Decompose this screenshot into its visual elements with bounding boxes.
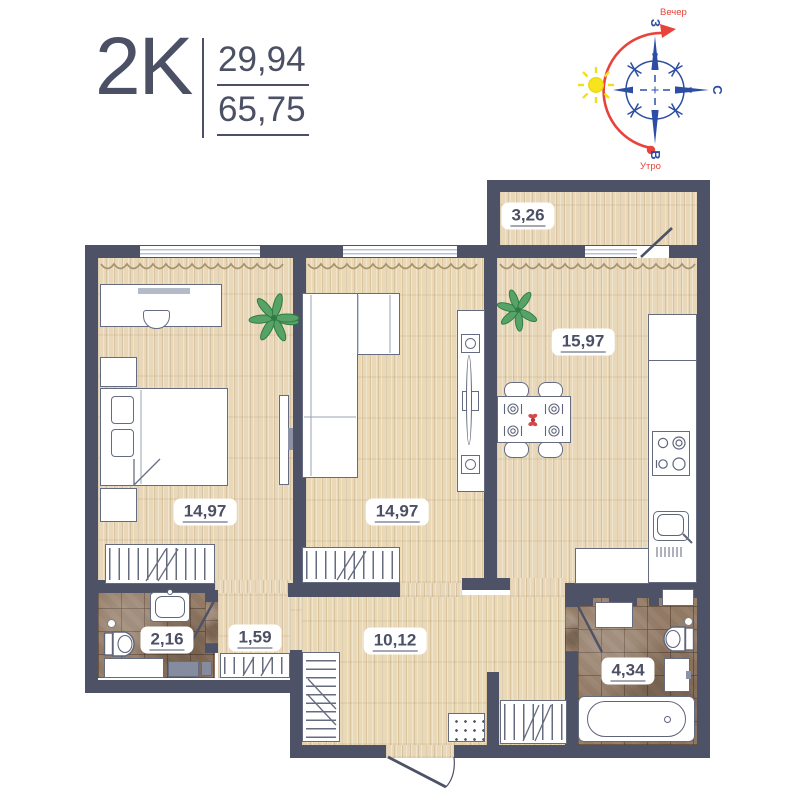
living-wardrobe <box>302 547 400 583</box>
kitchen-area-label: 15,97 <box>552 329 615 356</box>
toilet <box>103 629 145 659</box>
bedroom-tv-mount <box>288 428 293 450</box>
bathroom-sink-basin <box>155 596 185 618</box>
toilet-2 <box>655 624 697 654</box>
speaker-1 <box>461 334 480 353</box>
bath-cabinet <box>168 661 199 677</box>
bedroom-wardrobe <box>105 544 215 584</box>
bathtub-drain <box>664 716 671 723</box>
flower-decoration <box>528 413 538 427</box>
dining-chair <box>538 441 563 458</box>
bathroom-2-area-label: 4,34 <box>601 658 654 685</box>
hallway-area-label: 1,59 <box>228 625 281 652</box>
washing-machine-2 <box>595 602 633 628</box>
bathtub-basin <box>587 701 686 737</box>
cooktop-burners <box>652 431 690 476</box>
kitchen-counter-bottom <box>575 548 649 584</box>
corridor-area-label: 10,12 <box>364 628 427 655</box>
dining-chair <box>504 441 529 458</box>
speaker-2 <box>461 455 480 474</box>
bath-cabinet-small <box>201 661 212 676</box>
bathroom-area-label: 2,16 <box>140 627 193 654</box>
plant-icon <box>248 292 300 344</box>
living-room-area-label: 14,97 <box>366 499 429 526</box>
entry-wardrobe <box>500 700 567 744</box>
bath-shelf-white <box>662 589 694 606</box>
bedroom-area-label: 14,97 <box>174 499 237 526</box>
table-settings <box>497 396 571 443</box>
sink-details <box>652 526 697 561</box>
sofa-seams <box>302 293 402 479</box>
light-fixture <box>107 619 116 628</box>
balcony-area-label: 3,26 <box>501 203 554 230</box>
floor-plan-page: 2K 29,94 65,75 <box>0 0 800 800</box>
bath-shelf <box>578 598 593 606</box>
sink-tap <box>167 589 173 595</box>
hallway-wardrobe <box>220 653 290 678</box>
living-tv <box>466 355 472 445</box>
corridor-wardrobe <box>302 652 340 742</box>
doormat <box>448 713 485 742</box>
cabinet-handle <box>686 671 691 679</box>
plant-icon <box>494 286 542 334</box>
fridge <box>648 314 697 361</box>
washing-machine <box>104 658 164 678</box>
nightstand-2 <box>100 488 137 522</box>
bath-shelf <box>649 598 659 606</box>
